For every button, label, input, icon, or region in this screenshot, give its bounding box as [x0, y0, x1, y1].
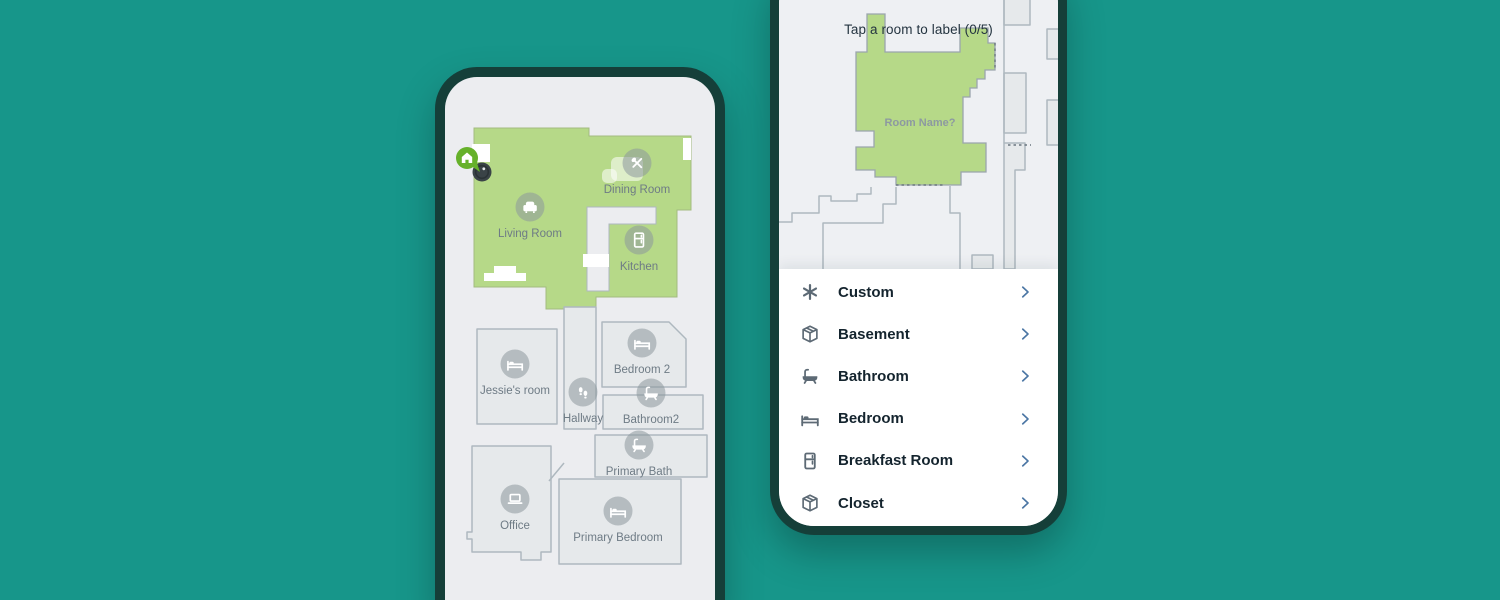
- room-type-label: Bathroom: [838, 368, 909, 385]
- chevron-right-icon[interactable]: [1016, 367, 1034, 385]
- map-instruction-text: Tap a room to label (0/5): [779, 22, 1058, 37]
- teal-background: [0, 0, 1500, 600]
- room-type-sheet: CustomBasementBathroomBedroomBreakfast R…: [779, 269, 1058, 526]
- room-marker-jessie-s-room[interactable]: [501, 350, 530, 379]
- room-marker-primary-bedroom[interactable]: [604, 497, 633, 526]
- room-hallway: [564, 307, 596, 429]
- room-label: Bathroom2: [623, 414, 679, 426]
- room-type-label: Closet: [838, 495, 884, 512]
- bed-icon: [799, 408, 821, 430]
- room-type-bedroom[interactable]: Bedroom: [779, 398, 1058, 440]
- room-type-bathroom[interactable]: Bathroom: [779, 355, 1058, 397]
- cube-icon: [799, 323, 821, 345]
- room-marker-primary-bath[interactable]: [625, 431, 654, 460]
- chevron-right-icon[interactable]: [1016, 494, 1034, 512]
- room-marker-office[interactable]: [501, 485, 530, 514]
- fridge-icon: [799, 450, 821, 472]
- room-label: Living Room: [498, 228, 562, 240]
- room-type-custom[interactable]: Custom: [779, 271, 1058, 313]
- room-type-label: Custom: [838, 284, 894, 301]
- chevron-right-icon[interactable]: [1016, 325, 1034, 343]
- floorplan-map[interactable]: Living RoomDining RoomKitchenJessie's ro…: [445, 77, 715, 600]
- room-marker-bathroom2[interactable]: [637, 379, 666, 408]
- room-marker-hallway[interactable]: [569, 378, 598, 407]
- room-label: Office: [500, 520, 530, 532]
- asterisk-icon: [799, 281, 821, 303]
- room-type-label: Breakfast Room: [838, 452, 953, 469]
- room-marker-living-room[interactable]: [516, 193, 545, 222]
- room-label: Hallway: [563, 413, 604, 425]
- phone-left-floorplan: Living RoomDining RoomKitchenJessie's ro…: [435, 67, 725, 600]
- room-label: Bedroom 2: [614, 364, 670, 376]
- room-type-basement[interactable]: Basement: [779, 313, 1058, 355]
- room-type-list: CustomBasementBathroomBedroomBreakfast R…: [779, 271, 1058, 524]
- room-label: Kitchen: [620, 261, 658, 273]
- room-label: Jessie's room: [480, 385, 550, 397]
- mapped-area-green[interactable]: [474, 128, 691, 309]
- room-marker-bedroom-2[interactable]: [628, 329, 657, 358]
- screenshot-stage: Living RoomDining RoomKitchenJessie's ro…: [0, 0, 1500, 600]
- selected-room-green[interactable]: [856, 14, 995, 185]
- room-type-closet[interactable]: Closet: [779, 482, 1058, 524]
- phone-right-labeling: Room Name? Tap a room to label (0/5) Cus…: [770, 0, 1067, 535]
- room-marker-kitchen[interactable]: [625, 226, 654, 255]
- chevron-right-icon[interactable]: [1016, 452, 1034, 470]
- room-name-placeholder: Room Name?: [885, 117, 956, 129]
- chevron-right-icon[interactable]: [1016, 283, 1034, 301]
- room-type-label: Bedroom: [838, 410, 904, 427]
- chevron-right-icon[interactable]: [1016, 410, 1034, 428]
- room-label: Primary Bedroom: [573, 532, 662, 544]
- zoomed-map[interactable]: Room Name?: [779, 0, 1058, 269]
- room-type-breakfast-room[interactable]: Breakfast Room: [779, 440, 1058, 482]
- room-type-label: Basement: [838, 326, 910, 343]
- room-label: Primary Bath: [606, 466, 672, 478]
- bathtub-icon: [799, 365, 821, 387]
- room-label: Dining Room: [604, 184, 670, 196]
- cube-icon: [799, 492, 821, 514]
- room-marker-dining-room[interactable]: [623, 149, 652, 178]
